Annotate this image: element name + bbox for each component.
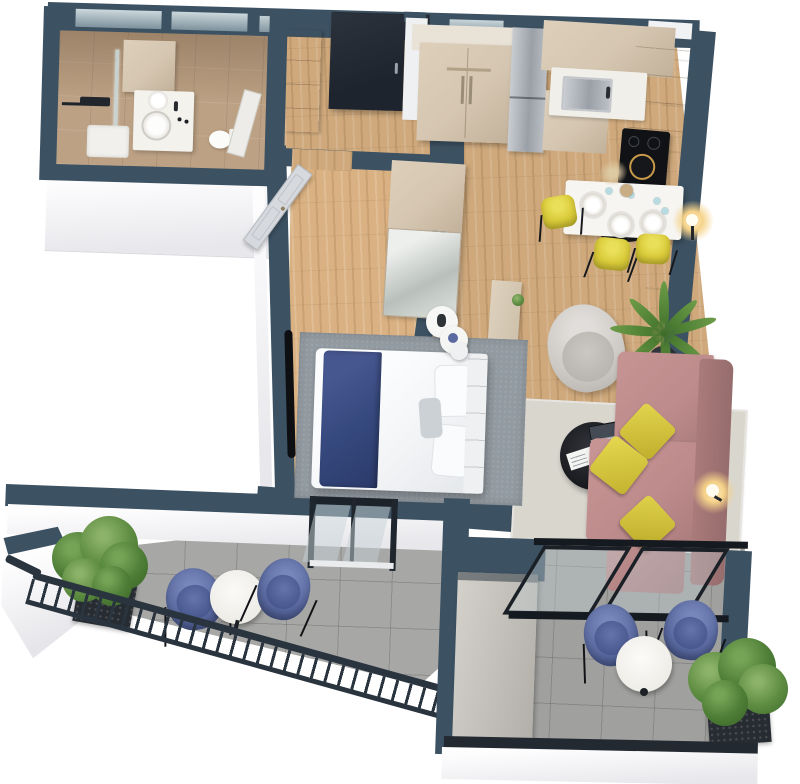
cooktop-ring	[647, 136, 661, 150]
soap-bottles	[177, 117, 181, 121]
round-sink	[141, 110, 172, 141]
bedroom-stool	[450, 342, 468, 360]
bedroom-balcony-door	[307, 496, 400, 585]
bed	[311, 348, 488, 494]
bedroom-wardrobe	[382, 160, 465, 320]
kitchen-faucet	[606, 87, 611, 99]
living-floor-lamp	[706, 484, 719, 497]
balcony-table-leg	[640, 688, 648, 696]
dining-chair	[635, 233, 671, 265]
wardrobe-handle	[461, 76, 465, 104]
right-balcony-planter	[686, 636, 800, 751]
dining-chair	[592, 236, 631, 272]
vanity-cabinet	[133, 90, 195, 152]
wardrobe-handle	[469, 76, 473, 104]
bed-accent-pillow	[418, 397, 443, 438]
door-handle	[280, 206, 286, 212]
entrance-door-handle	[395, 63, 398, 74]
wardrobe-door-seam	[464, 48, 468, 138]
dining-lamp-stem	[691, 226, 694, 240]
wardrobe-top-bar-handle	[447, 67, 491, 72]
nightstand-decor	[437, 314, 446, 327]
table-vase	[620, 184, 633, 197]
wardrobe-mirror	[382, 228, 461, 320]
bathroom-floor	[56, 30, 268, 170]
window-1	[75, 9, 161, 29]
floor-plan-render	[0, 0, 800, 784]
kitchen-countertop	[549, 67, 648, 121]
wardrobe-panel	[388, 160, 466, 232]
entrance-door	[329, 13, 406, 111]
plate	[640, 210, 666, 236]
shower-head	[80, 97, 110, 107]
bathroom-tall-cabinet	[122, 40, 175, 93]
window-2	[171, 11, 247, 31]
pan-on-cooktop	[628, 153, 656, 181]
hall-wardrobe	[416, 42, 515, 143]
faucet	[174, 101, 178, 111]
cooktop-ring	[628, 136, 640, 148]
shower-tray	[86, 125, 129, 158]
balcony-door-sill	[310, 560, 394, 569]
plate	[580, 192, 606, 218]
wine-glass	[662, 208, 668, 214]
shrub-foliage	[702, 680, 748, 726]
right-balcony-parapet	[441, 747, 758, 784]
dining-floor-lamp	[686, 214, 698, 226]
fridge-door-seam	[510, 97, 546, 101]
balcony-door-glass	[342, 506, 390, 565]
shoe-cabinet	[284, 29, 321, 132]
balcony-door-post	[389, 499, 398, 571]
wine-glass	[654, 198, 660, 204]
dining-chair	[539, 193, 578, 230]
plate	[608, 212, 634, 238]
vanity-upper-basin	[148, 90, 169, 111]
bed-navy-throw	[319, 350, 382, 488]
sideboard-plant	[512, 294, 524, 306]
balcony-table	[616, 636, 672, 692]
